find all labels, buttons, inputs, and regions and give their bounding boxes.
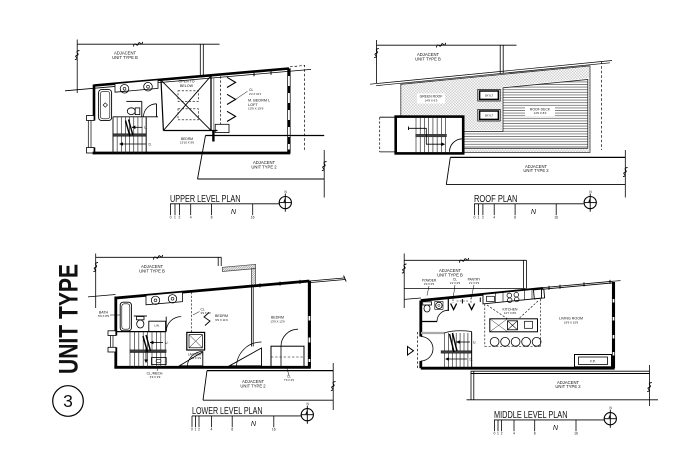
svg-text:2: 2	[501, 431, 503, 435]
svg-text:1: 1	[174, 215, 176, 219]
svg-text:14'9 X 6'3: 14'9 X 6'3	[425, 98, 438, 102]
svg-text:N: N	[553, 423, 559, 432]
svg-text:LOWER LEVEL PLAN: LOWER LEVEL PLAN	[192, 406, 263, 417]
svg-text:1: 1	[477, 215, 479, 219]
svg-text:0: 0	[170, 215, 172, 219]
svg-text:13'9 X 19'9: 13'9 X 19'9	[248, 107, 264, 111]
svg-text:8: 8	[211, 215, 213, 219]
svg-text:UPPER LEVEL PLAN: UPPER LEVEL PLAN	[170, 194, 241, 205]
svg-text:UNIT TYPE B: UNIT TYPE B	[112, 55, 138, 60]
svg-text:D.: D.	[149, 142, 152, 146]
svg-text:2: 2	[198, 427, 200, 431]
svg-text:4: 4	[211, 427, 213, 431]
svg-text:U.: U.	[144, 126, 147, 130]
svg-text:4: 4	[493, 215, 495, 219]
svg-text:4: 4	[513, 431, 515, 435]
svg-text:0: 0	[191, 427, 193, 431]
svg-text:SKYLT: SKYLT	[485, 94, 494, 98]
svg-text:8: 8	[231, 427, 233, 431]
svg-text:3'9 X 3'9: 3'9 X 3'9	[150, 375, 161, 379]
svg-text:UNIT TYPE 2: UNIT TYPE 2	[555, 384, 581, 389]
svg-text:7'9 X 2'0: 7'9 X 2'0	[284, 378, 295, 382]
svg-text:3: 3	[63, 391, 73, 411]
svg-text:MIDDLE LEVEL PLAN: MIDDLE LEVEL PLAN	[494, 410, 568, 421]
svg-text:UNIT TYPE 2: UNIT TYPE 2	[251, 164, 277, 169]
svg-text:9'9 X 11'9: 9'9 X 11'9	[215, 318, 228, 322]
svg-text:1: 1	[497, 431, 499, 435]
svg-text:N: N	[531, 207, 537, 216]
svg-text:N: N	[231, 207, 237, 216]
svg-text:16: 16	[251, 215, 255, 219]
svg-text:1: 1	[195, 427, 197, 431]
svg-text:2'2 X 6'9: 2'2 X 6'9	[450, 281, 461, 285]
svg-text:N: N	[251, 419, 257, 428]
svg-text:19'9 X 15'9: 19'9 X 15'9	[564, 321, 579, 325]
svg-text:CL: CL	[201, 308, 205, 312]
svg-text:5'9 X 8'9: 5'9 X 8'9	[98, 314, 109, 318]
svg-text:UNIT TYPE B: UNIT TYPE B	[437, 273, 463, 278]
svg-text:BELOW: BELOW	[180, 84, 194, 88]
svg-text:UNIT TYPE: UNIT TYPE	[54, 264, 84, 374]
svg-text:16: 16	[574, 431, 578, 435]
svg-text:U.: U.	[473, 340, 476, 344]
svg-text:2: 2	[482, 215, 484, 219]
svg-text:14'7 X 8'0: 14'7 X 8'0	[504, 311, 517, 315]
svg-text:13'9 X 12'9: 13'9 X 12'9	[270, 320, 285, 324]
svg-text:UNIT TYPE B: UNIT TYPE B	[139, 269, 165, 274]
svg-text:0: 0	[473, 215, 475, 219]
svg-text:16: 16	[272, 427, 276, 431]
svg-text:F.P.: F.P.	[590, 359, 596, 363]
svg-text:SKYLT: SKYLT	[485, 114, 494, 118]
svg-text:3'9 X 6'9: 3'9 X 6'9	[424, 282, 435, 286]
svg-text:13'10 X 9'6: 13'10 X 9'6	[180, 141, 195, 145]
svg-text:2: 2	[178, 215, 180, 219]
svg-text:3'9 X 3'9: 3'9 X 3'9	[190, 356, 201, 360]
svg-text:0: 0	[493, 431, 495, 435]
svg-text:UNIT TYPE 2: UNIT TYPE 2	[523, 168, 549, 173]
svg-text:8: 8	[514, 215, 516, 219]
svg-text:2'2 X 6'9: 2'2 X 6'9	[469, 281, 480, 285]
svg-text:UNIT TYPE B: UNIT TYPE B	[415, 57, 441, 62]
svg-text:LIN.: LIN.	[154, 324, 160, 328]
svg-text:U.: U.	[165, 341, 168, 345]
svg-text:4: 4	[190, 215, 192, 219]
svg-text:2'2 X 10'1: 2'2 X 10'1	[249, 92, 262, 96]
svg-text:16: 16	[554, 215, 558, 219]
svg-text:14'9 X 8'3: 14'9 X 8'3	[534, 111, 547, 115]
svg-text:3'9 X 2'0: 3'9 X 2'0	[201, 311, 212, 315]
svg-text:ROOF PLAN: ROOF PLAN	[474, 194, 518, 205]
svg-text:UNIT TYPE 2: UNIT TYPE 2	[240, 383, 266, 388]
svg-text:8: 8	[534, 431, 536, 435]
